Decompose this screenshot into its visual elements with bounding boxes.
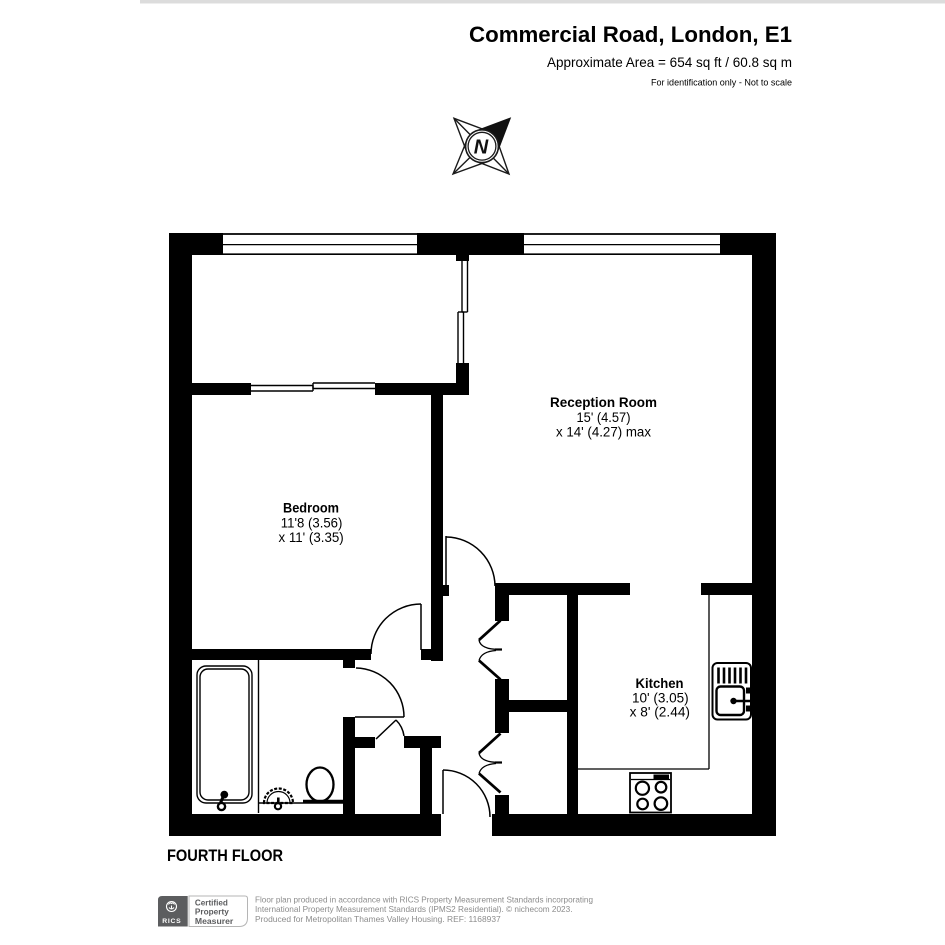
svg-text:Kitchen: Kitchen: [636, 676, 684, 691]
svg-text:FOURTH FLOOR: FOURTH FLOOR: [167, 846, 283, 865]
svg-text:x 11' (3.35): x 11' (3.35): [279, 530, 344, 545]
svg-text:Certified: Certified: [195, 898, 228, 907]
svg-text:Commercial Road, London, E1: Commercial Road, London, E1: [469, 22, 792, 47]
svg-text:11'8 (3.56): 11'8 (3.56): [281, 515, 343, 530]
svg-text:For identification only - Not: For identification only - Not to scale: [651, 78, 792, 89]
svg-text:x 8' (2.44): x 8' (2.44): [630, 705, 690, 720]
svg-text:Produced for Metropolitan Tham: Produced for Metropolitan Thames Valley …: [255, 914, 501, 924]
svg-text:Measurer: Measurer: [195, 917, 233, 926]
svg-text:Approximate Area = 654 sq ft /: Approximate Area = 654 sq ft / 60.8 sq m: [547, 54, 792, 70]
svg-text:Reception Room: Reception Room: [550, 395, 657, 410]
svg-text:15' (4.57): 15' (4.57): [577, 410, 631, 425]
svg-text:RICS: RICS: [162, 918, 181, 925]
svg-text:Bedroom: Bedroom: [283, 501, 339, 516]
svg-text:Property: Property: [195, 908, 229, 917]
svg-text:x 14' (4.27) max: x 14' (4.27) max: [556, 425, 651, 440]
svg-text:10' (3.05): 10' (3.05): [632, 691, 689, 706]
svg-text:International Property Measure: International Property Measurement Stand…: [255, 904, 573, 914]
svg-text:N: N: [474, 137, 489, 159]
svg-text:Floor plan produced in accorda: Floor plan produced in accordance with R…: [255, 895, 593, 905]
